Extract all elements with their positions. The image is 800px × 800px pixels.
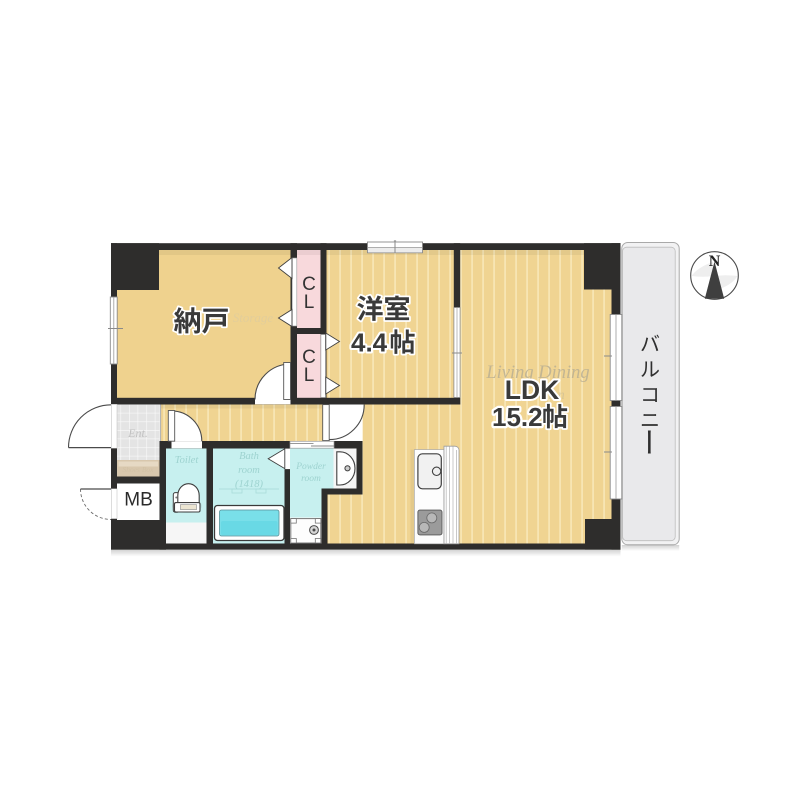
svg-text:MB: MB xyxy=(124,490,153,511)
svg-text:4.4: 4.4 xyxy=(351,328,388,358)
svg-text:LDK: LDK xyxy=(505,375,559,405)
svg-text:Storage: Storage xyxy=(233,310,274,325)
svg-text:Toilet: Toilet xyxy=(175,455,200,466)
svg-text:Ent.: Ent. xyxy=(127,426,148,440)
svg-text:(1418): (1418) xyxy=(235,479,263,490)
svg-text:room: room xyxy=(238,465,260,476)
svg-text:L: L xyxy=(304,365,315,386)
svg-text:L: L xyxy=(304,292,315,313)
svg-text:15.2: 15.2 xyxy=(492,402,543,432)
svg-text:room: room xyxy=(301,474,321,484)
svg-text:Bath: Bath xyxy=(239,451,259,462)
svg-text:N: N xyxy=(709,253,721,270)
svg-text:Shoes Box: Shoes Box xyxy=(122,465,154,474)
svg-text:Powder: Powder xyxy=(295,462,326,472)
